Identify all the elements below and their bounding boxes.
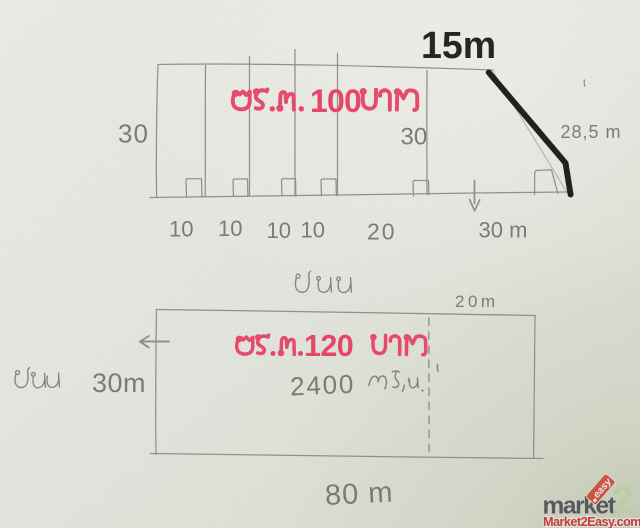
svg-text:120: 120 [304, 329, 353, 363]
svg-text:20: 20 [367, 219, 397, 245]
svg-text:10: 10 [218, 216, 242, 241]
svg-text:15m: 15m [421, 24, 496, 66]
svg-text:30m: 30m [92, 368, 146, 398]
svg-text:30: 30 [401, 124, 428, 151]
svg-text:20m: 20m [455, 292, 499, 311]
svg-text:10: 10 [267, 218, 291, 243]
svg-text:30: 30 [118, 119, 149, 149]
svg-text:28,5 m: 28,5 m [561, 122, 622, 142]
svg-text:100: 100 [310, 83, 361, 119]
svg-text:Market2Easy.com: Market2Easy.com [543, 515, 640, 528]
svg-text:10: 10 [169, 217, 193, 242]
svg-text:30 m: 30 m [479, 218, 528, 243]
svg-text:10: 10 [301, 218, 325, 243]
svg-text:2400: 2400 [289, 369, 355, 402]
svg-text:80 m: 80 m [324, 476, 394, 512]
